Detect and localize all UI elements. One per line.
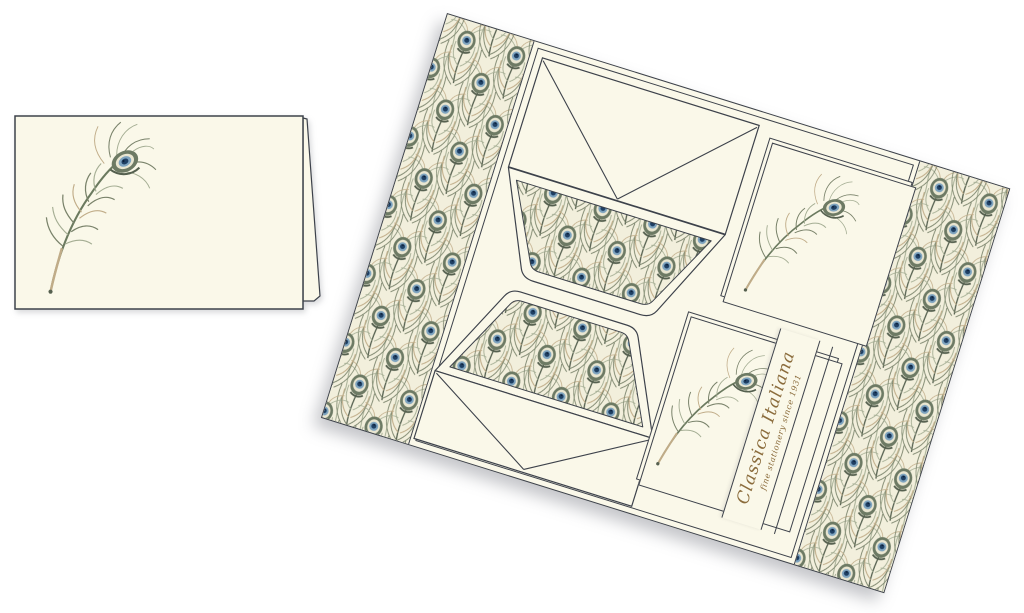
folded-note-card — [10, 110, 324, 318]
stationery-box-open: Classica Italiana fine stationery since … — [321, 13, 1010, 593]
product-photo: Classica Italiana fine stationery since … — [0, 0, 1024, 613]
folded-card-back-panel — [303, 118, 320, 301]
folded-card-front-panel — [15, 116, 303, 309]
